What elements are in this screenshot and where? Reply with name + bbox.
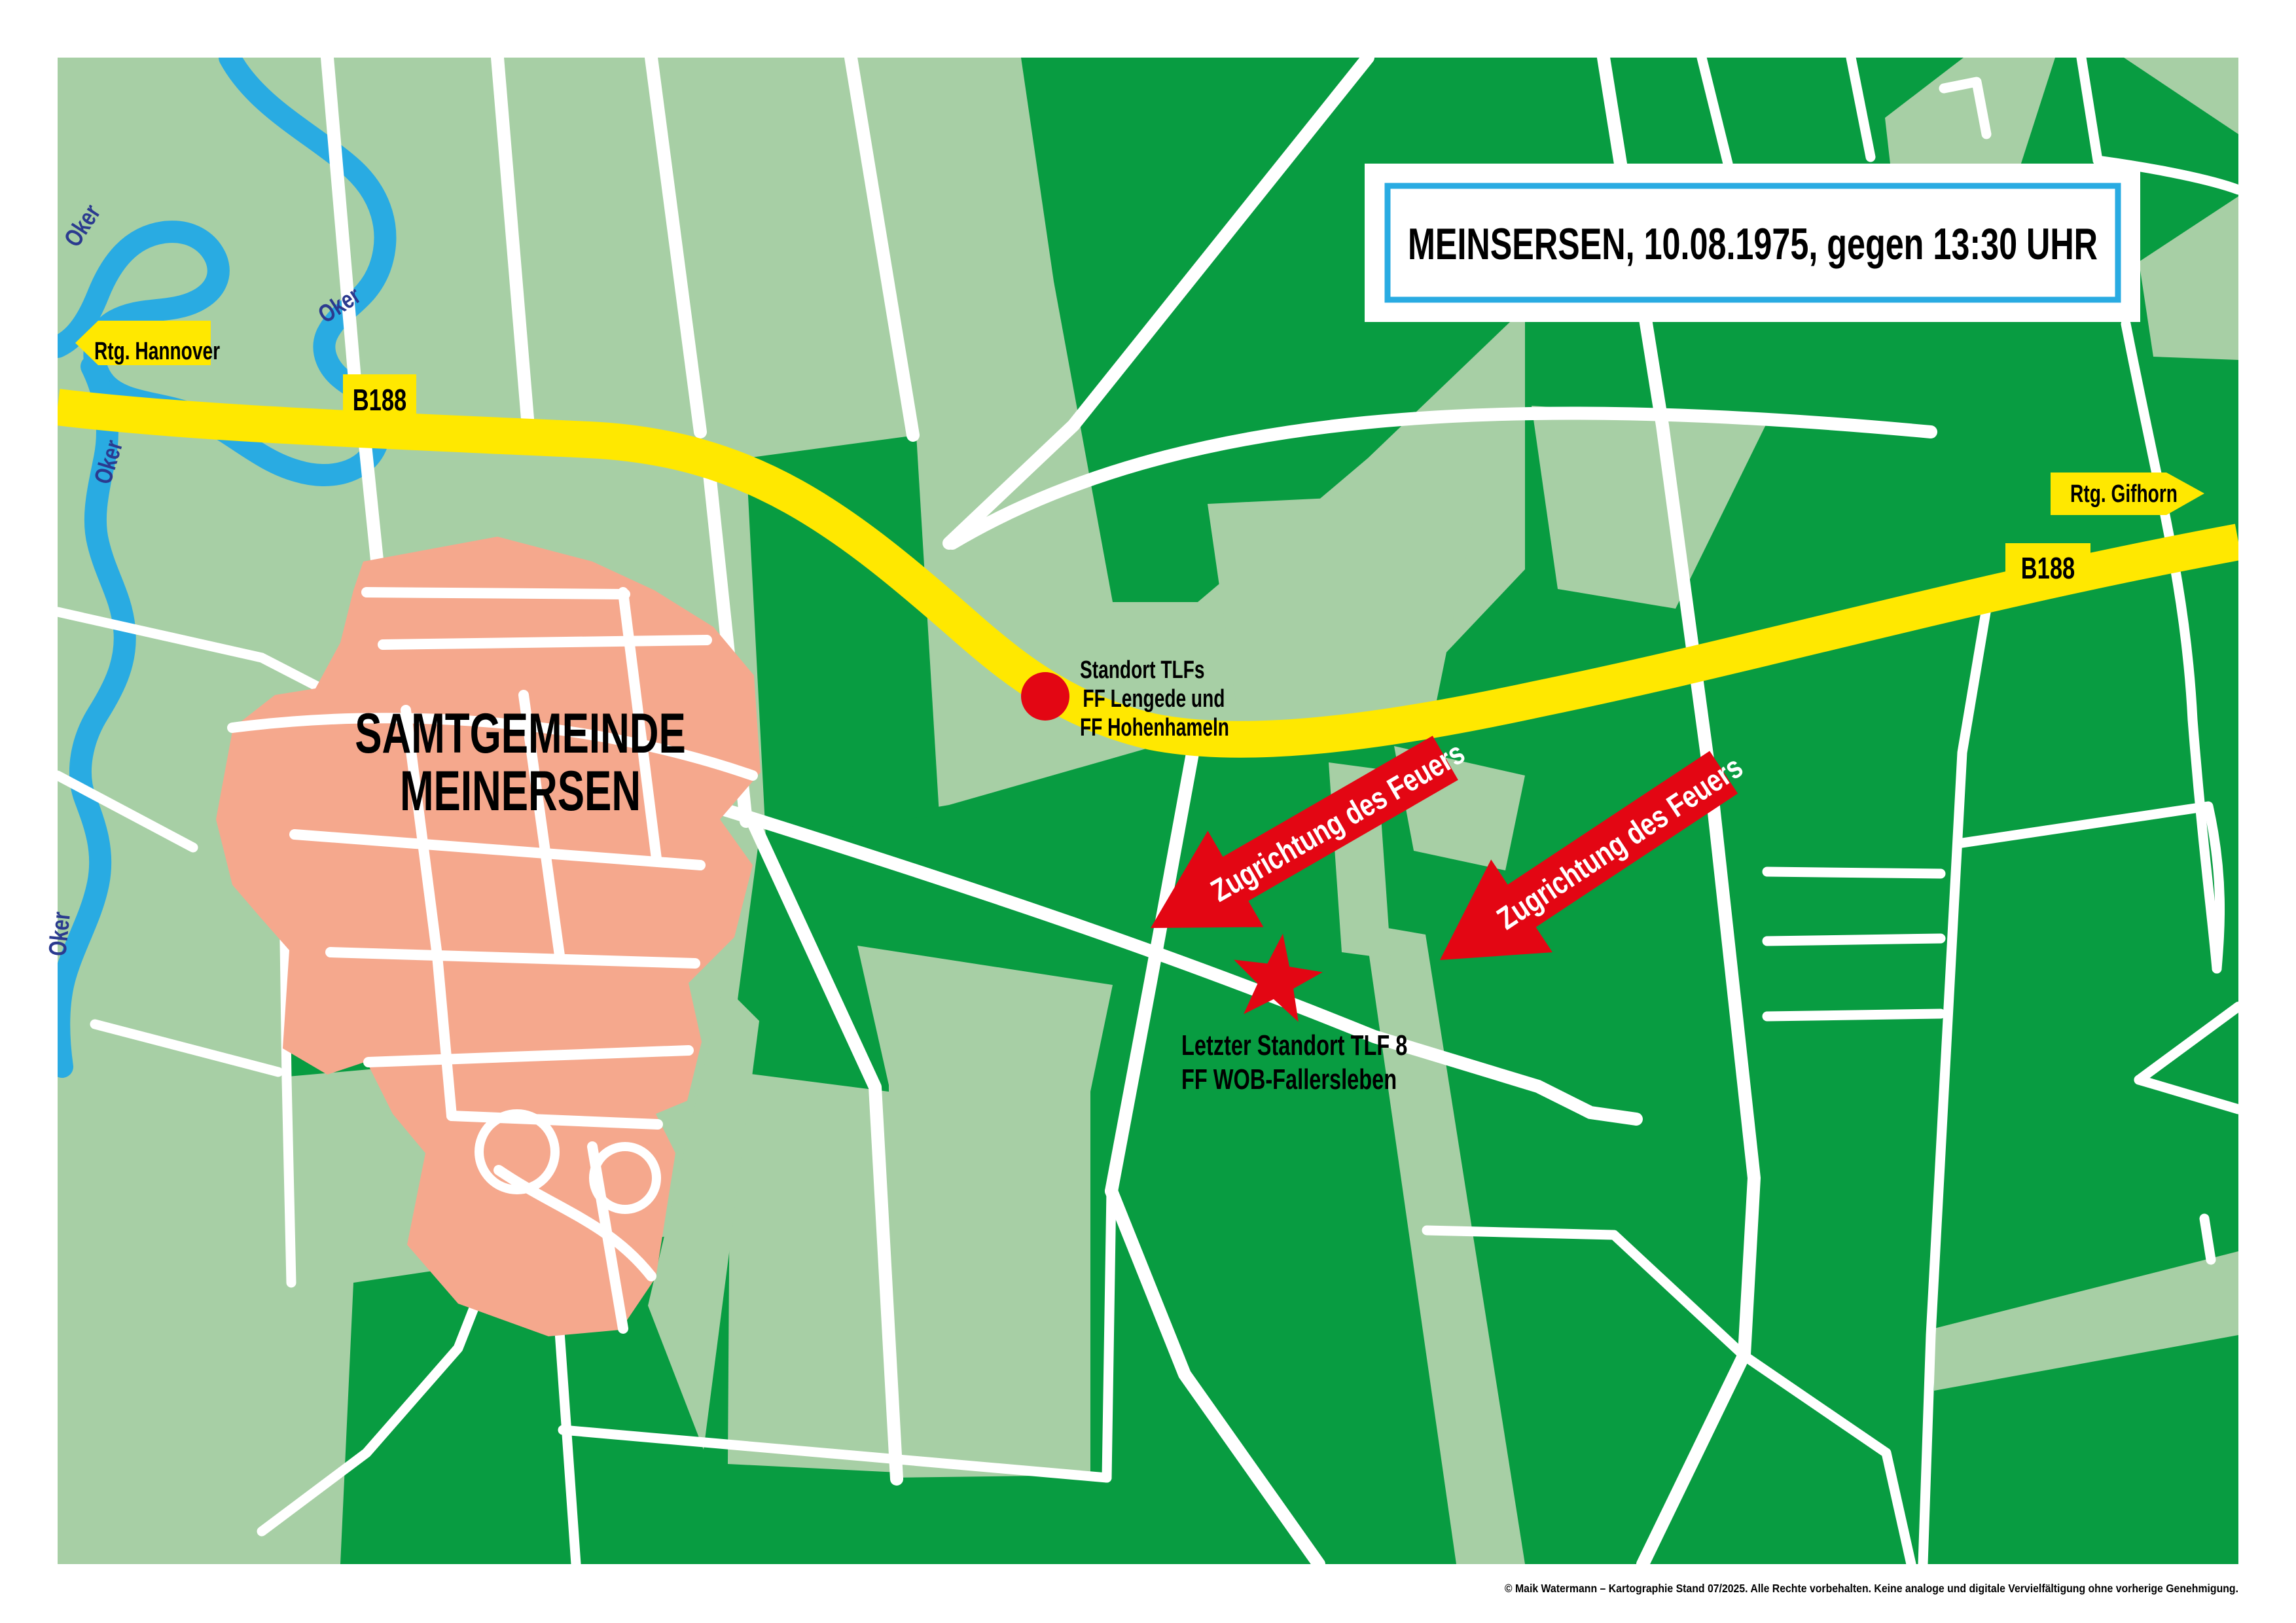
title-box: MEINSERSEN, 10.08.1975, gegen 13:30 UHR [1365, 164, 2140, 322]
map-poster: B188 B188 Rtg. Hannover Rtg. Gifhorn Oke… [0, 0, 2296, 1623]
title-text: MEINSERSEN, 10.08.1975, gegen 13:30 UHR [1408, 219, 2098, 269]
map-canvas: B188 B188 Rtg. Hannover Rtg. Gifhorn Oke… [0, 0, 2296, 1623]
b188-label-west: B188 [353, 383, 406, 417]
road [1107, 1191, 1111, 1478]
sign-gifhorn-label: Rtg. Gifhorn [2070, 480, 2178, 508]
sign-hannover-label: Rtg. Hannover [94, 338, 220, 365]
town-name-line2: MEINERSEN [400, 759, 641, 822]
town-name-line1: SAMTGEMEINDE [355, 702, 686, 764]
town-street [383, 640, 707, 645]
road [1767, 938, 1941, 941]
copyright-text: © Maik Watermann – Kartographie Stand 07… [1505, 1582, 2238, 1595]
road [1767, 872, 1941, 874]
river-label: Oker [44, 910, 76, 957]
tlf-label-line2: FF Lengede und [1083, 685, 1225, 713]
b188-label-east: B188 [2021, 551, 2075, 585]
town-name: SAMTGEMEINDE MEINERSEN [355, 702, 686, 822]
road [2204, 1219, 2211, 1260]
tlf-label-line1: Standort TLFs [1080, 656, 1204, 684]
tlf-dot-marker [1021, 672, 1069, 721]
last-position-line2: FF WOB-Fallersleben [1181, 1063, 1397, 1096]
last-position-line1: Letzter Standort TLF 8 [1181, 1029, 1407, 1061]
road [1767, 1014, 1941, 1016]
town-street [367, 592, 625, 594]
tlf-label-line3: FF Hohenhameln [1080, 714, 1229, 741]
